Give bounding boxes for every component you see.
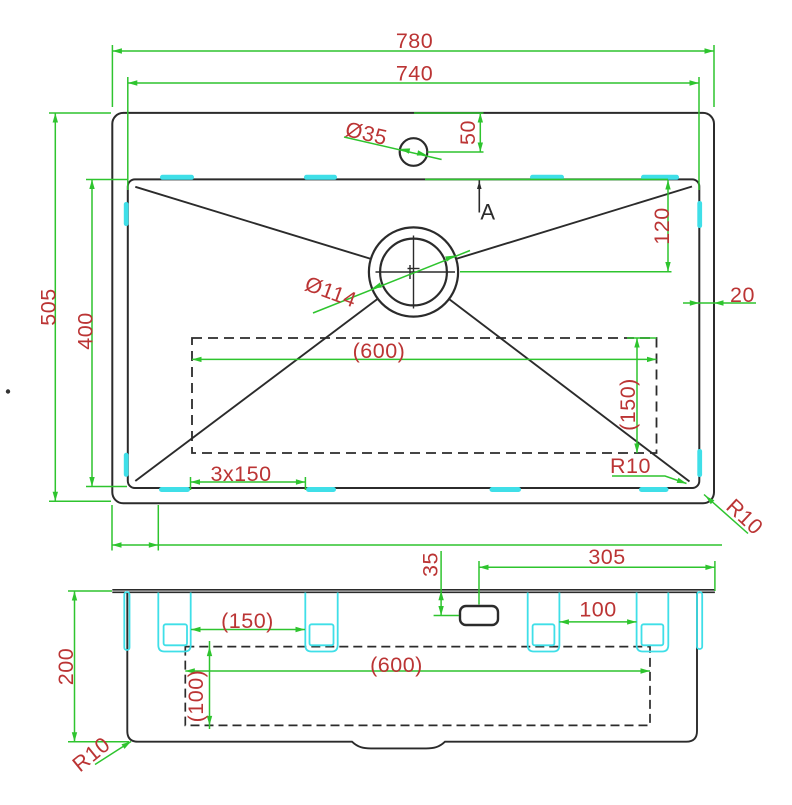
svg-text:120: 120 (650, 207, 674, 244)
svg-text:(150): (150) (221, 609, 274, 633)
svg-text:305: 305 (588, 545, 625, 569)
svg-text:50: 50 (456, 120, 480, 145)
svg-text:35: 35 (419, 552, 443, 577)
svg-text:505: 505 (37, 288, 61, 325)
svg-text:3x150: 3x150 (210, 462, 271, 486)
svg-text:(150): (150) (616, 378, 640, 431)
svg-text:740: 740 (396, 62, 433, 86)
svg-text:400: 400 (74, 312, 98, 349)
svg-text:(100): (100) (184, 670, 208, 723)
svg-text:A: A (480, 199, 495, 224)
svg-text:200: 200 (54, 648, 78, 685)
svg-text:(600): (600) (353, 339, 406, 363)
svg-text:20: 20 (730, 283, 755, 307)
svg-text:R10: R10 (610, 454, 651, 478)
svg-text:(600): (600) (370, 653, 423, 677)
svg-text:100: 100 (579, 598, 616, 622)
svg-text:780: 780 (396, 29, 433, 53)
